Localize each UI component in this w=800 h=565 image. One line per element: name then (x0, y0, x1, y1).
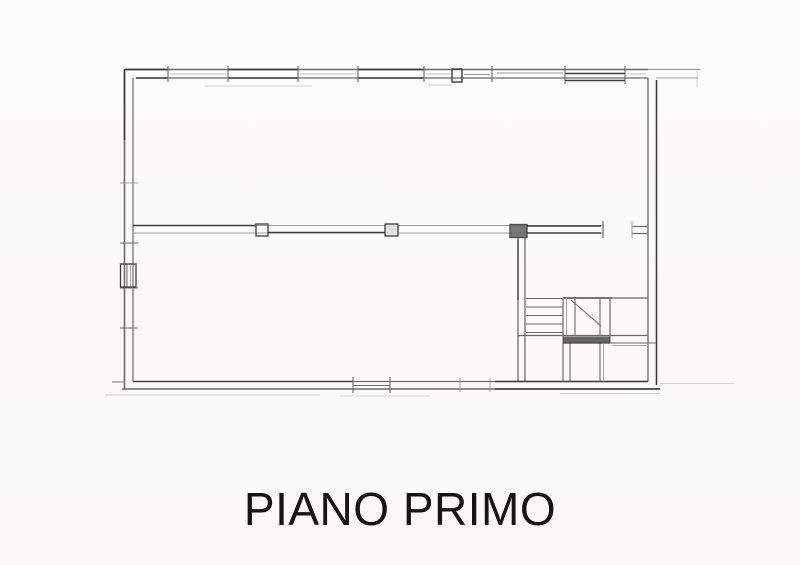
stair-landing-band (563, 337, 610, 344)
mid-wall-jamb-box-3 (510, 225, 527, 238)
top-wall-mullion-box (452, 69, 462, 82)
left-wall-window-box (121, 264, 137, 287)
scanned-floor-plan-page: PIANO PRIMO (0, 0, 800, 565)
floor-plan-title: PIANO PRIMO (0, 482, 800, 536)
mid-wall-jamb-box-2 (385, 224, 398, 236)
floor-plan-drawing (0, 0, 800, 565)
